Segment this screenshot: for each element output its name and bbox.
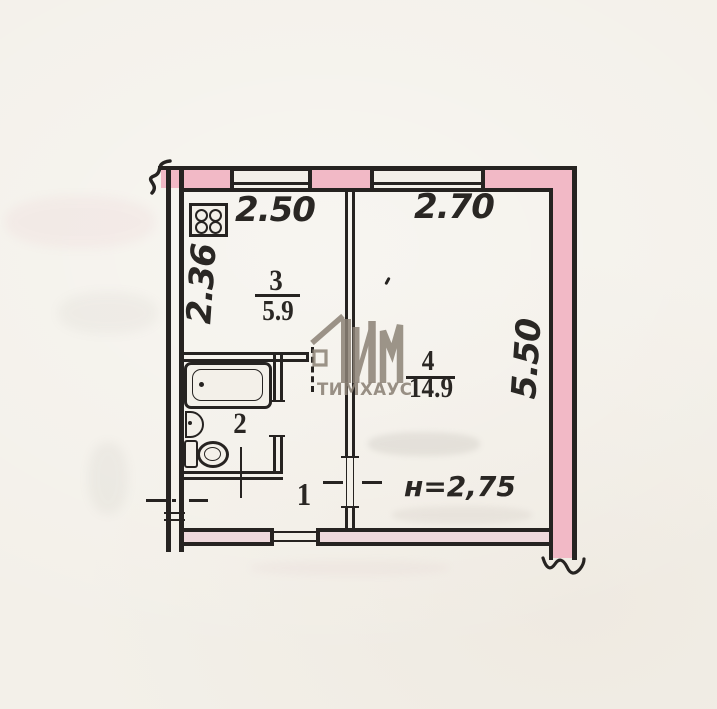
wall-kitchen-bath-line — [184, 352, 308, 355]
dim-right: 5.50 — [507, 318, 546, 400]
bleedthrough-artifact — [5, 196, 155, 248]
wall-bath-right-line — [273, 437, 276, 474]
wall-left-break-tick — [164, 519, 185, 521]
window-jamb — [370, 166, 374, 192]
wall-right-inner-line — [549, 188, 553, 560]
wall-left-inner-line — [179, 170, 184, 552]
ceiling-height-note: н=2,75 — [404, 473, 516, 501]
ref-dash — [323, 481, 343, 484]
room-living-area: 14.9 — [409, 375, 453, 403]
dim-left: 2.36 — [182, 243, 221, 325]
bleedthrough-artifact — [368, 432, 480, 456]
wall-bottom-bottom-line — [183, 542, 549, 546]
entrance-jamb — [316, 528, 320, 546]
wall-right-fill — [552, 170, 573, 558]
scanned-floor-plan: 2.50 2.70 2.36 5.50 н=2,75 3 5.9 4 14.9 … — [0, 0, 717, 709]
wall-bath-bottom-line — [184, 477, 283, 480]
timhaus-logo-icon — [310, 313, 402, 385]
bath-door-jamb-tick — [269, 435, 285, 437]
wall-break-mark-top-left — [146, 158, 176, 196]
wall-bottom-fill — [184, 531, 549, 542]
ref-dash-dot — [172, 499, 176, 502]
window-jamb — [230, 166, 234, 192]
ref-dash — [146, 499, 166, 502]
wall-bottom-top-line — [183, 528, 549, 532]
room-bath-number: 2 — [233, 409, 247, 439]
dim-top-left: 2.50 — [235, 193, 315, 227]
wall-bath-right-line — [280, 354, 283, 402]
room-bath-leader-line — [240, 447, 242, 498]
window-kitchen-sill-line — [233, 182, 310, 185]
bathtub-icon — [184, 362, 272, 409]
room-hall-number: 1 — [297, 478, 311, 510]
wall-break-mark-bottom-right — [540, 550, 586, 580]
window-jamb — [308, 166, 312, 192]
partition-door-thin-line — [353, 458, 354, 506]
partition-door-jamb-tick — [341, 456, 359, 458]
room-kitchen-number: 3 — [269, 266, 283, 296]
wall-kitchen-bath-endcap — [306, 352, 309, 362]
room-living-number: 4 — [422, 348, 435, 376]
wall-bath-bottom-line — [184, 471, 283, 474]
toilet-icon — [184, 440, 198, 468]
timhaus-watermark-text: ТИМХАУС — [317, 382, 412, 399]
entrance-threshold-line — [273, 531, 318, 533]
room-kitchen-area: 5.9 — [262, 298, 294, 326]
ref-dash — [362, 481, 382, 484]
bleedthrough-artifact — [250, 560, 450, 576]
wall-bath-right-line — [280, 437, 283, 474]
stove-icon — [189, 203, 228, 237]
bleedthrough-artifact — [88, 442, 128, 514]
bleedthrough-artifact — [58, 292, 158, 334]
wall-right-outer-line — [572, 166, 577, 560]
window-living-sill-line — [372, 182, 484, 185]
entrance-jamb — [270, 528, 274, 546]
wall-left-outer-line — [166, 170, 171, 552]
ref-dash — [189, 499, 208, 502]
wall-bath-right-line — [273, 354, 276, 402]
entrance-door-opening — [273, 527, 318, 547]
wall-top-pier-mid — [310, 170, 372, 188]
toilet-bowl-icon — [197, 441, 229, 468]
sink-icon — [185, 411, 204, 438]
entrance-threshold-line — [273, 540, 318, 542]
partition-door-thin-line — [346, 458, 347, 506]
scan-speck — [384, 277, 390, 285]
partition-door-jamb-tick — [341, 506, 359, 508]
dim-top-right: 2.70 — [414, 190, 494, 224]
wall-left-break-tick — [164, 512, 185, 514]
bleedthrough-artifact — [392, 506, 532, 524]
